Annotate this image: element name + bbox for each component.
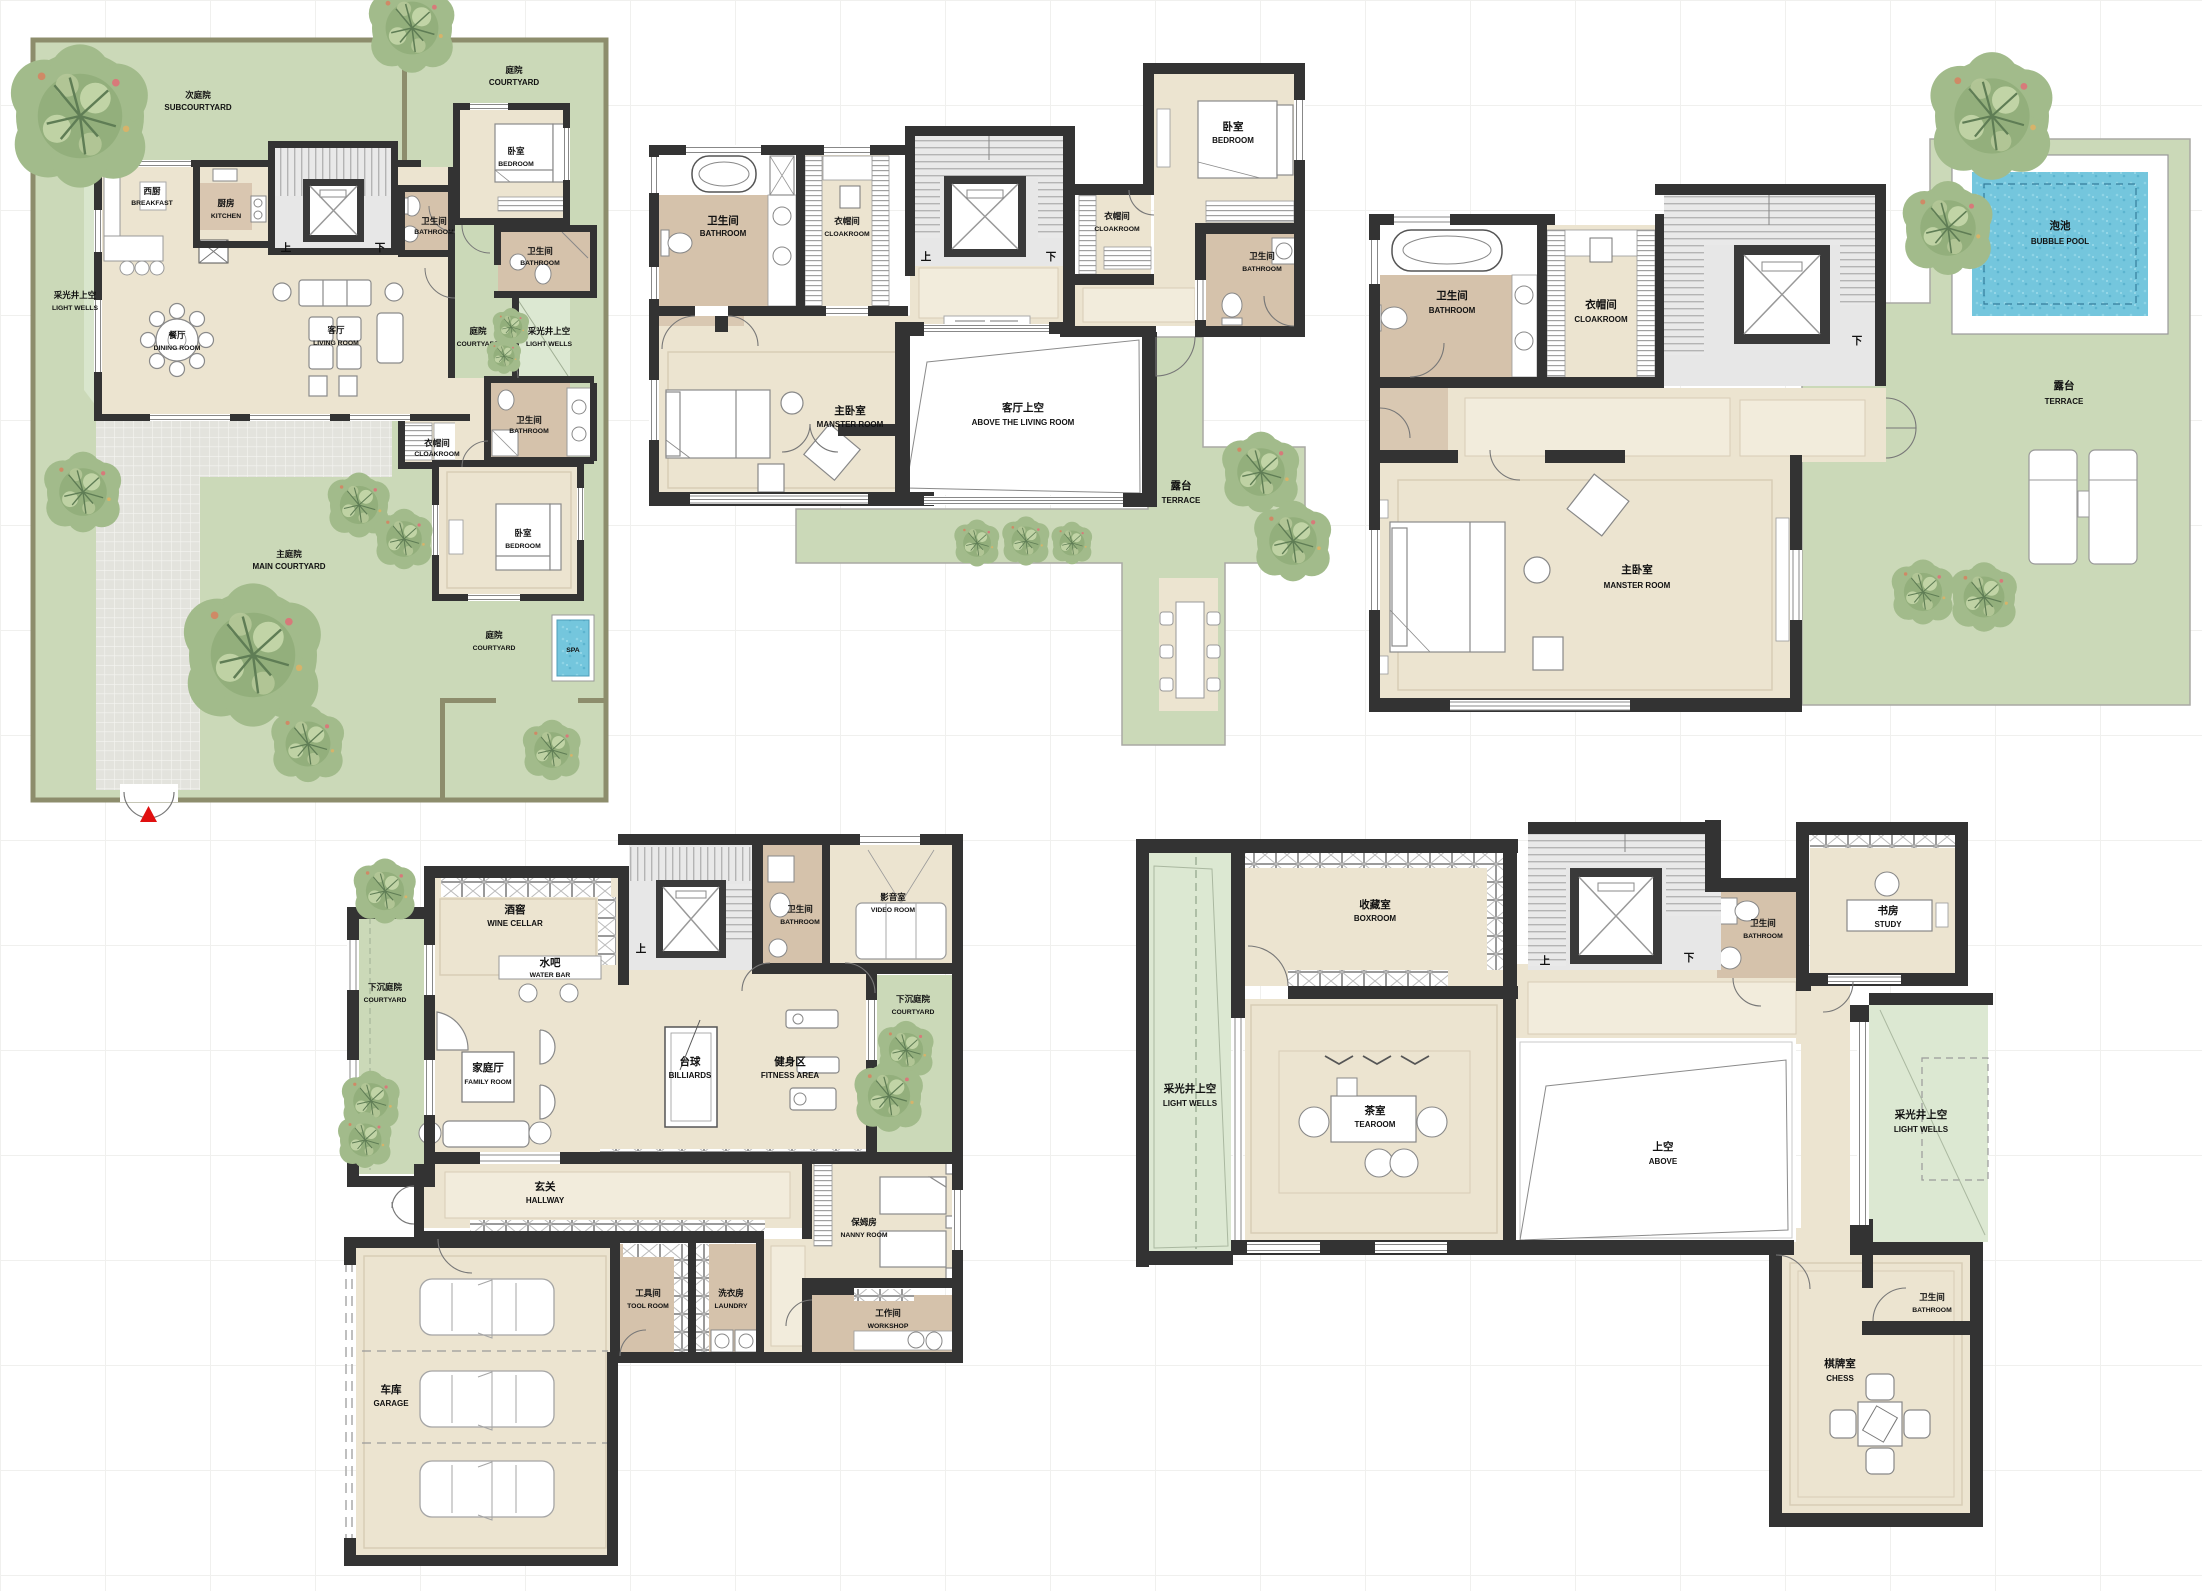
svg-text:BILLIARDS: BILLIARDS bbox=[669, 1071, 712, 1080]
svg-text:庭院: 庭院 bbox=[469, 326, 487, 336]
svg-text:卫生间: 卫生间 bbox=[787, 904, 813, 914]
svg-text:COURTYARD: COURTYARD bbox=[892, 1009, 935, 1016]
svg-text:厨房: 厨房 bbox=[217, 198, 234, 208]
svg-text:LIGHT WELLS: LIGHT WELLS bbox=[526, 341, 573, 348]
svg-text:西厨: 西厨 bbox=[143, 186, 161, 196]
svg-text:上: 上 bbox=[636, 942, 647, 955]
svg-text:MANSTER ROOM: MANSTER ROOM bbox=[1604, 581, 1671, 590]
svg-text:下沉庭院: 下沉庭院 bbox=[368, 982, 403, 992]
svg-text:BATHROOM: BATHROOM bbox=[509, 428, 549, 435]
svg-text:STUDY: STUDY bbox=[1874, 920, 1902, 929]
svg-text:卫生间: 卫生间 bbox=[707, 214, 739, 227]
svg-text:酒窖: 酒窖 bbox=[505, 903, 526, 916]
svg-text:CLOAKROOM: CLOAKROOM bbox=[414, 451, 460, 458]
svg-text:BATHROOM: BATHROOM bbox=[414, 229, 454, 236]
svg-text:卫生间: 卫生间 bbox=[1249, 251, 1275, 261]
svg-text:LIGHT WELLS: LIGHT WELLS bbox=[1163, 1099, 1218, 1108]
svg-text:卧室: 卧室 bbox=[514, 528, 532, 538]
svg-text:衣帽间: 衣帽间 bbox=[1104, 211, 1130, 221]
svg-text:BOXROOM: BOXROOM bbox=[1354, 914, 1397, 923]
svg-text:卫生间: 卫生间 bbox=[421, 216, 447, 226]
svg-text:客厅: 客厅 bbox=[326, 325, 345, 335]
svg-text:采光井上空: 采光井上空 bbox=[53, 290, 97, 300]
svg-text:ABOVE THE LIVING ROOM: ABOVE THE LIVING ROOM bbox=[972, 418, 1075, 427]
svg-text:COURTYARD: COURTYARD bbox=[473, 645, 516, 652]
svg-text:车库: 车库 bbox=[381, 1383, 402, 1396]
svg-text:COURTYARD: COURTYARD bbox=[489, 78, 540, 87]
svg-text:BUBBLE POOL: BUBBLE POOL bbox=[2031, 237, 2089, 246]
svg-text:工具间: 工具间 bbox=[635, 1288, 661, 1298]
svg-text:水吧: 水吧 bbox=[539, 956, 561, 969]
svg-text:下: 下 bbox=[1046, 251, 1057, 263]
svg-text:下: 下 bbox=[375, 242, 386, 254]
svg-text:上空: 上空 bbox=[1653, 1140, 1674, 1153]
svg-text:BATHROOM: BATHROOM bbox=[1912, 1307, 1952, 1314]
svg-text:MANSTER ROOM: MANSTER ROOM bbox=[817, 420, 884, 429]
svg-text:上: 上 bbox=[921, 250, 932, 263]
svg-text:WINE CELLAR: WINE CELLAR bbox=[487, 919, 543, 928]
svg-text:FITNESS AREA: FITNESS AREA bbox=[761, 1071, 820, 1080]
svg-text:收藏室: 收藏室 bbox=[1359, 898, 1391, 911]
svg-text:WORKSHOP: WORKSHOP bbox=[868, 1323, 909, 1330]
svg-text:LIVING ROOM: LIVING ROOM bbox=[313, 340, 359, 347]
svg-text:BREAKFAST: BREAKFAST bbox=[131, 200, 173, 207]
svg-text:卫生间: 卫生间 bbox=[527, 246, 553, 256]
svg-text:下: 下 bbox=[1852, 335, 1863, 347]
svg-text:餐厅: 餐厅 bbox=[167, 330, 186, 340]
svg-text:卫生间: 卫生间 bbox=[1750, 918, 1776, 928]
svg-text:庭院: 庭院 bbox=[505, 65, 523, 75]
svg-text:衣帽间: 衣帽间 bbox=[1585, 298, 1617, 311]
svg-text:茶室: 茶室 bbox=[1364, 1104, 1387, 1117]
svg-text:采光井上空: 采光井上空 bbox=[527, 326, 571, 336]
svg-text:卫生间: 卫生间 bbox=[1919, 1292, 1945, 1302]
svg-text:影音室: 影音室 bbox=[880, 892, 906, 902]
svg-text:MAIN COURTYARD: MAIN COURTYARD bbox=[252, 562, 325, 571]
svg-text:上: 上 bbox=[1540, 954, 1551, 967]
svg-text:次庭院: 次庭院 bbox=[185, 90, 211, 100]
svg-text:主卧室: 主卧室 bbox=[1621, 563, 1653, 576]
svg-text:LIGHT WELLS: LIGHT WELLS bbox=[52, 305, 99, 312]
svg-text:卧室: 卧室 bbox=[507, 146, 525, 156]
svg-text:书房: 书房 bbox=[1878, 904, 1899, 917]
svg-text:主庭院: 主庭院 bbox=[276, 549, 302, 559]
svg-text:保姆房: 保姆房 bbox=[850, 1217, 877, 1227]
svg-text:BATHROOM: BATHROOM bbox=[1242, 266, 1282, 273]
svg-text:KITCHEN: KITCHEN bbox=[211, 213, 241, 220]
svg-text:玄关: 玄关 bbox=[535, 1180, 556, 1193]
svg-text:BATHROOM: BATHROOM bbox=[520, 260, 560, 267]
svg-text:ABOVE: ABOVE bbox=[1649, 1157, 1678, 1166]
svg-text:露台: 露台 bbox=[1171, 479, 1192, 492]
svg-text:工作间: 工作间 bbox=[875, 1308, 901, 1318]
svg-text:BATHROOM: BATHROOM bbox=[1743, 933, 1783, 940]
svg-text:VIDEO ROOM: VIDEO ROOM bbox=[871, 907, 916, 914]
svg-text:主卧室: 主卧室 bbox=[834, 404, 866, 417]
svg-text:HALLWAY: HALLWAY bbox=[526, 1196, 565, 1205]
svg-text:TERRACE: TERRACE bbox=[2045, 397, 2084, 406]
svg-text:TOOL ROOM: TOOL ROOM bbox=[627, 1303, 669, 1310]
svg-text:BEDROOM: BEDROOM bbox=[498, 161, 534, 168]
svg-text:GARAGE: GARAGE bbox=[373, 1399, 409, 1408]
svg-text:健身区: 健身区 bbox=[774, 1055, 806, 1068]
svg-text:衣帽间: 衣帽间 bbox=[424, 438, 450, 448]
svg-text:WATER BAR: WATER BAR bbox=[530, 972, 571, 979]
svg-text:BATHROOM: BATHROOM bbox=[780, 919, 820, 926]
svg-text:BEDROOM: BEDROOM bbox=[1212, 136, 1254, 145]
svg-text:卫生间: 卫生间 bbox=[516, 415, 542, 425]
svg-text:LIGHT WELLS: LIGHT WELLS bbox=[1894, 1125, 1949, 1134]
svg-text:采光井上空: 采光井上空 bbox=[1163, 1082, 1217, 1095]
svg-text:下: 下 bbox=[1684, 952, 1695, 964]
svg-text:TEAROOM: TEAROOM bbox=[1355, 1120, 1396, 1129]
svg-text:下沉庭院: 下沉庭院 bbox=[896, 994, 931, 1004]
svg-text:CLOAKROOM: CLOAKROOM bbox=[824, 231, 870, 238]
svg-text:CLOAKROOM: CLOAKROOM bbox=[1574, 315, 1628, 324]
svg-text:LAUNDRY: LAUNDRY bbox=[715, 1303, 748, 1310]
svg-text:SPA: SPA bbox=[566, 647, 580, 654]
svg-text:FAMILY ROOM: FAMILY ROOM bbox=[464, 1079, 512, 1086]
svg-text:庭院: 庭院 bbox=[485, 630, 503, 640]
svg-text:卧室: 卧室 bbox=[1223, 120, 1245, 133]
svg-text:TERRACE: TERRACE bbox=[1162, 496, 1201, 505]
svg-text:NANNY ROOM: NANNY ROOM bbox=[840, 1232, 887, 1239]
svg-text:衣帽间: 衣帽间 bbox=[834, 216, 860, 226]
svg-text:CHESS: CHESS bbox=[1826, 1374, 1854, 1383]
svg-text:露台: 露台 bbox=[2054, 379, 2075, 392]
svg-text:泡池: 泡池 bbox=[2050, 219, 2072, 232]
svg-text:CLOAKROOM: CLOAKROOM bbox=[1094, 226, 1140, 233]
svg-text:BATHROOM: BATHROOM bbox=[700, 229, 747, 238]
svg-text:客厅上空: 客厅上空 bbox=[1001, 401, 1044, 414]
svg-text:台球: 台球 bbox=[680, 1055, 701, 1068]
svg-text:上: 上 bbox=[281, 241, 292, 254]
svg-text:棋牌室: 棋牌室 bbox=[1823, 1357, 1856, 1370]
svg-text:COURTYARD: COURTYARD bbox=[364, 997, 407, 1004]
svg-text:BATHROOM: BATHROOM bbox=[1429, 306, 1476, 315]
svg-text:SUBCOURTYARD: SUBCOURTYARD bbox=[164, 103, 231, 112]
svg-text:家庭厅: 家庭厅 bbox=[472, 1061, 504, 1074]
svg-text:洗衣房: 洗衣房 bbox=[718, 1288, 744, 1298]
svg-text:DINING ROOM: DINING ROOM bbox=[154, 345, 201, 352]
svg-text:采光井上空: 采光井上空 bbox=[1894, 1108, 1948, 1121]
svg-text:卫生间: 卫生间 bbox=[1436, 289, 1468, 302]
svg-text:BEDROOM: BEDROOM bbox=[505, 543, 541, 550]
